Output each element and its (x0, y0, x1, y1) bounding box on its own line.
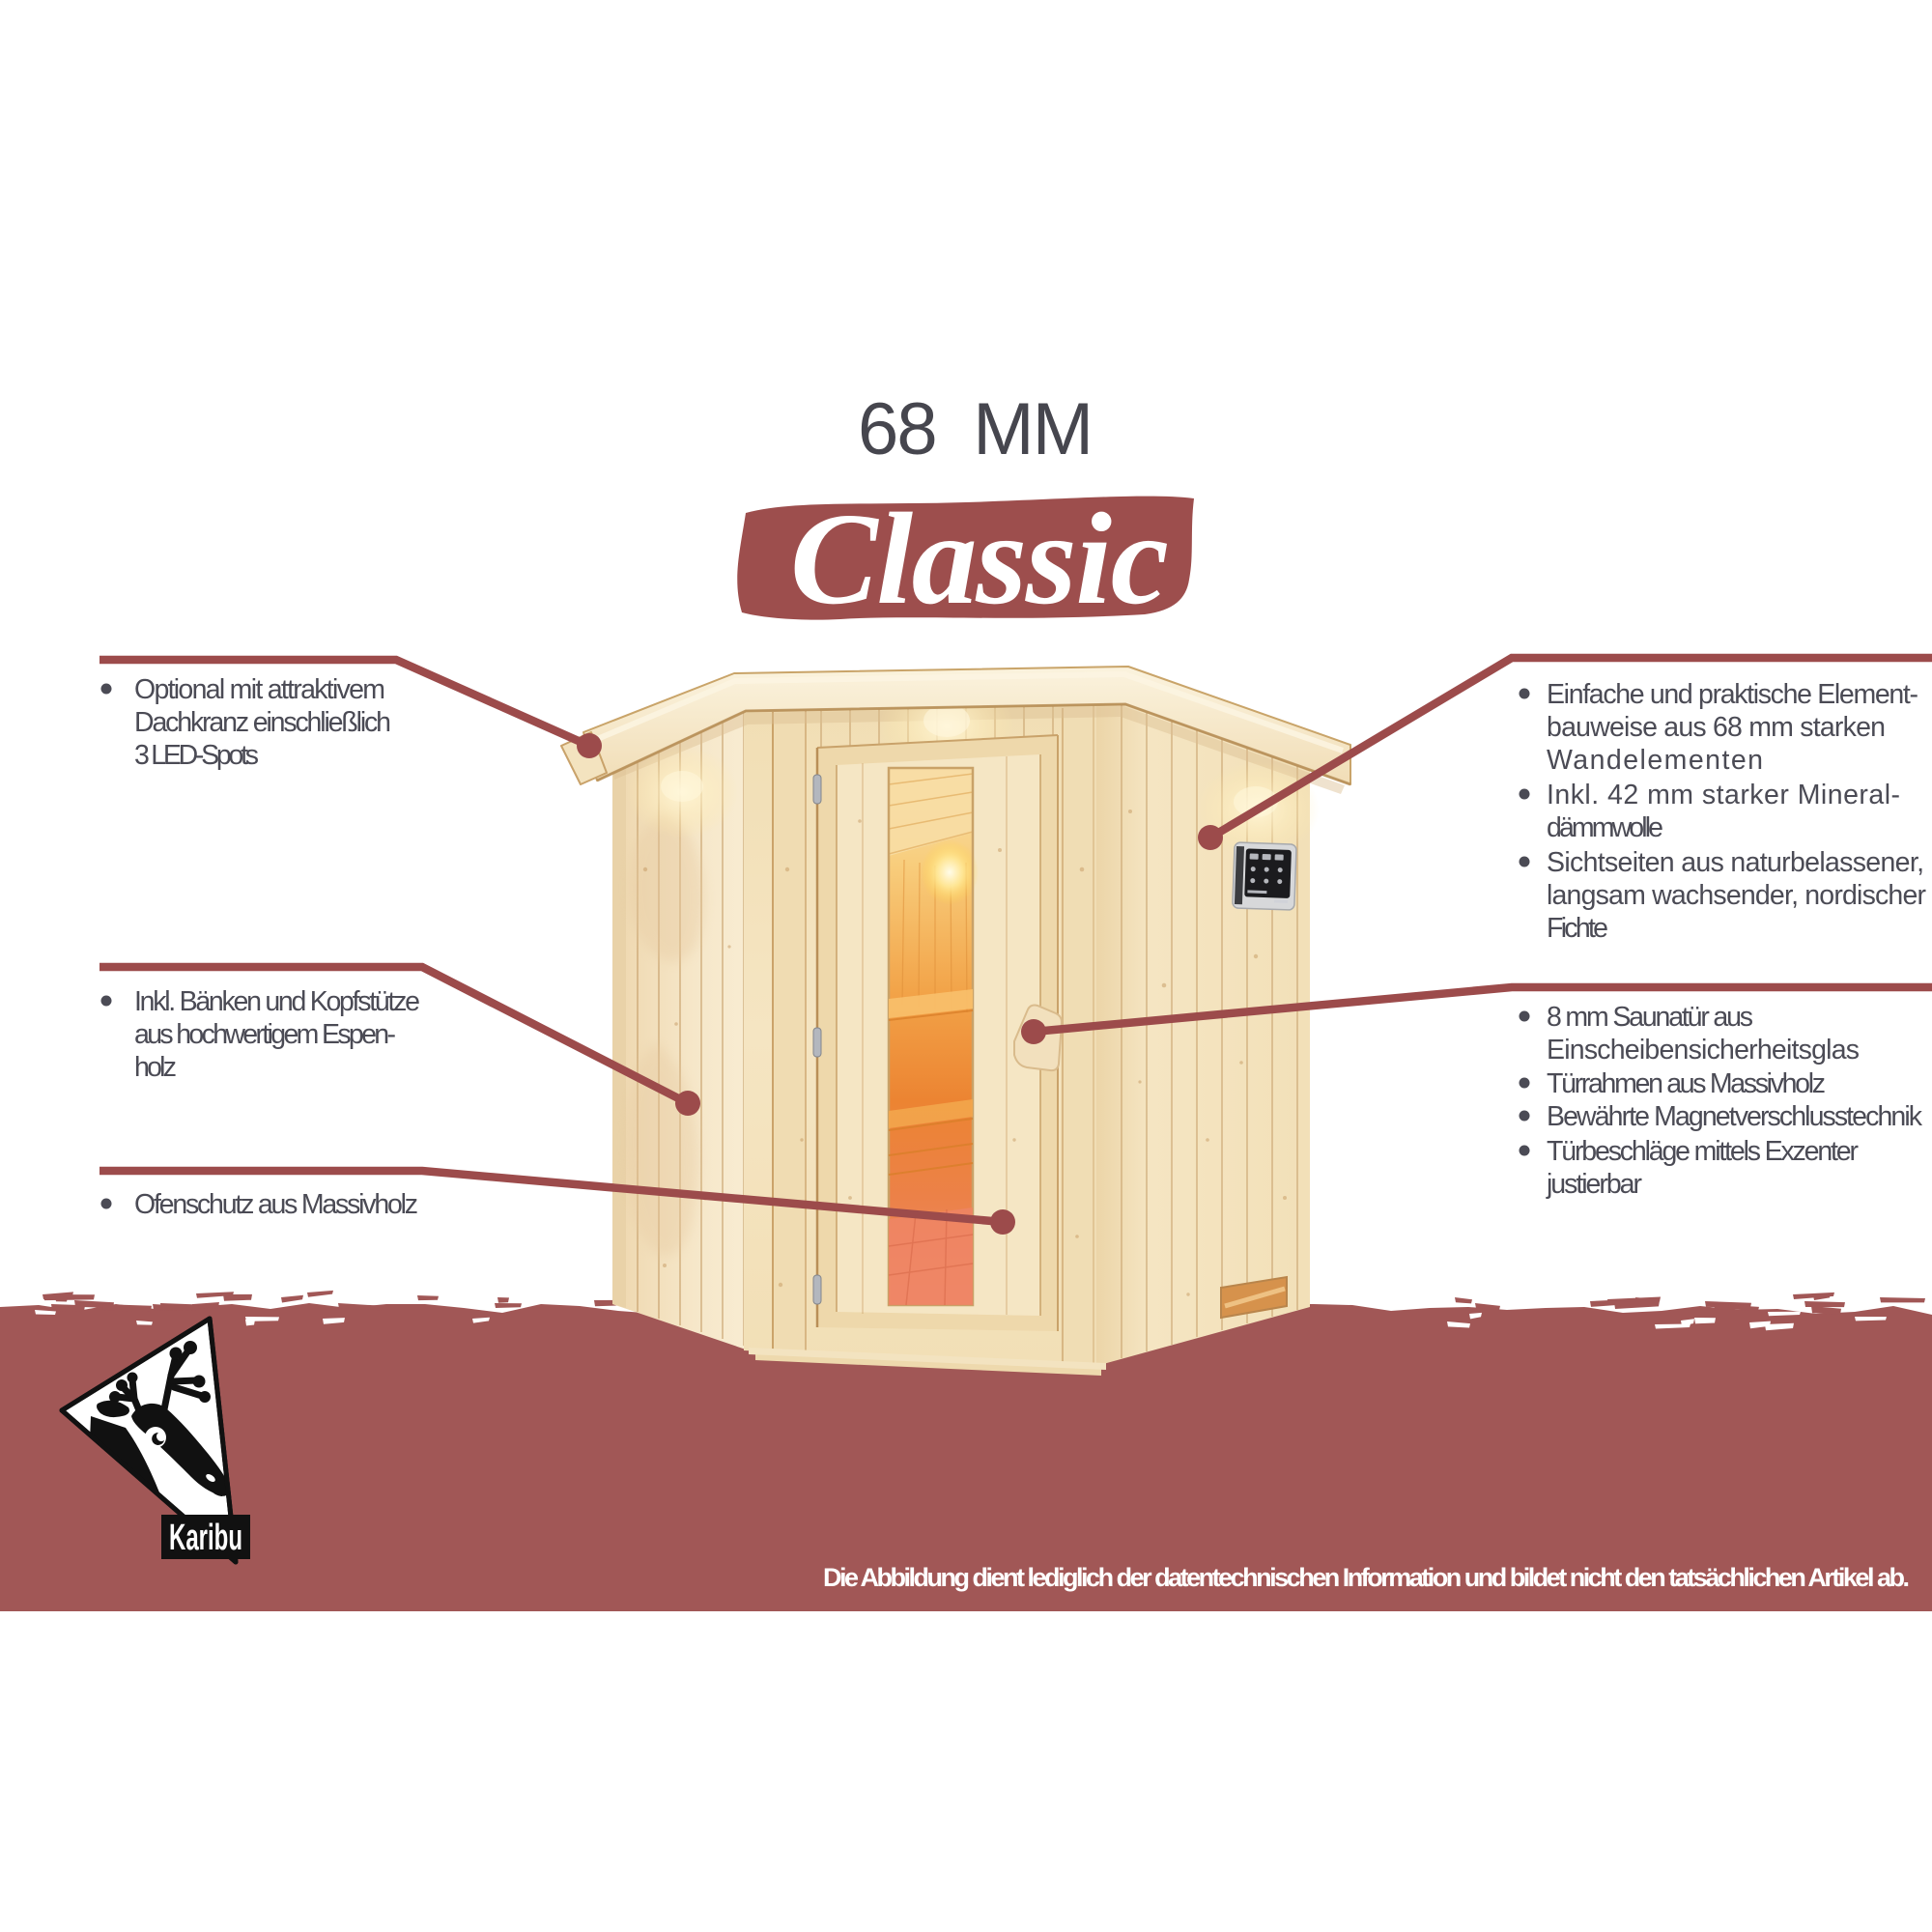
svg-text:Ofenschutz aus Massivholz: Ofenschutz aus Massivholz (134, 1189, 418, 1220)
svg-text:Inkl. Bänken und Kopfstütze: Inkl. Bänken und Kopfstütze (134, 986, 420, 1017)
svg-text:Die Abbildung dient lediglich: Die Abbildung dient lediglich der datent… (823, 1563, 1910, 1592)
svg-text:dämmwolle: dämmwolle (1547, 812, 1663, 843)
svg-text:Sichtseiten aus naturbelassene: Sichtseiten aus naturbelassener, (1547, 847, 1924, 878)
svg-text:Dachkranz einschließlich: Dachkranz einschließlich (134, 707, 391, 738)
svg-text:Türbeschläge mittels Exzenter: Türbeschläge mittels Exzenter (1547, 1136, 1860, 1167)
svg-text:Karibu: Karibu (169, 1518, 242, 1558)
svg-text:holz: holz (134, 1052, 177, 1083)
svg-text:Einfache und praktische Elemen: Einfache und praktische Element- (1547, 679, 1918, 710)
svg-text:Wandelementen: Wandelementen (1547, 745, 1763, 776)
svg-text:bauweise aus 68 mm starken: bauweise aus 68 mm starken (1547, 712, 1886, 743)
svg-text:Inkl. 42 mm starker Mineral-: Inkl. 42 mm starker Mineral- (1547, 780, 1900, 810)
svg-text:Optional mit attraktivem: Optional mit attraktivem (134, 674, 385, 705)
svg-text:Einscheibensicherheitsglas: Einscheibensicherheitsglas (1547, 1035, 1860, 1065)
svg-text:8 mm Saunatür aus: 8 mm Saunatür aus (1547, 1002, 1753, 1033)
svg-text:Bewährte Magnetverschlusstechn: Bewährte Magnetverschlusstechnik (1547, 1101, 1923, 1132)
svg-text:aus hochwertigem Espen-: aus hochwertigem Espen- (134, 1019, 396, 1050)
svg-text:Türrahmen aus Massivholz: Türrahmen aus Massivholz (1547, 1068, 1826, 1099)
svg-text:Fichte: Fichte (1547, 913, 1608, 944)
svg-text:68 MM: 68 MM (858, 388, 1097, 470)
svg-text:langsam wachsender, nordischer: langsam wachsender, nordischer (1547, 880, 1927, 911)
svg-text:justierbar: justierbar (1546, 1169, 1643, 1200)
svg-text:Classic: Classic (790, 487, 1169, 632)
svg-text:3 LED-Spots: 3 LED-Spots (134, 740, 259, 771)
